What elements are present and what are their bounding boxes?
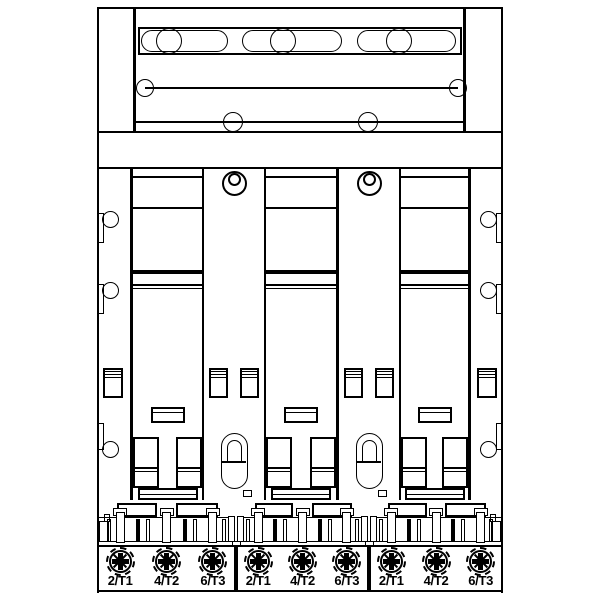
clamp-block [344, 368, 363, 398]
pole-top-line [401, 176, 468, 178]
pole-wall [202, 169, 204, 500]
screw-cross-icon [204, 559, 221, 564]
comb-gap-bracket [228, 516, 235, 542]
comb-post-stem [116, 512, 125, 543]
screw-cross-icon [428, 559, 445, 564]
pole-divider-line [133, 207, 202, 209]
terminal-label: 4/T2 [144, 574, 190, 588]
pivot-circle [223, 112, 243, 132]
clamp-block [209, 368, 228, 398]
comb-end-bracket [99, 521, 109, 542]
clamp-hatch [241, 371, 258, 372]
comb-bar-thick [407, 519, 411, 542]
comb-bar-thick [273, 519, 277, 542]
terminal-label: 6/T3 [324, 574, 370, 588]
contact-window-line [312, 471, 334, 472]
screw-cross-icon [294, 559, 311, 564]
clamp-hatch [478, 371, 496, 372]
side-clip-circle [480, 441, 497, 458]
slot-opening [141, 30, 228, 52]
clamp-hatch [478, 374, 496, 375]
comb-bar-thick [183, 519, 187, 542]
terminal-label: 2/T1 [235, 574, 281, 588]
clamp-block [375, 368, 394, 398]
channel-bottom-tab [378, 490, 387, 497]
pole-wall [336, 169, 339, 500]
contact-window-line [444, 471, 466, 472]
terminal-label: 2/T1 [368, 574, 414, 588]
comb-bar-thin [461, 519, 465, 542]
contact-window-line [178, 471, 200, 472]
pole-divider-line [401, 207, 468, 209]
comb-gap-bracket [237, 516, 244, 542]
pole-divider-line [133, 284, 202, 286]
comb-bar-thick [136, 519, 140, 542]
screw-cross-icon [112, 559, 129, 564]
housing-outline-top [97, 7, 501, 9]
carriage-wall-right [463, 7, 466, 131]
contact-window-line [268, 471, 290, 472]
pole-contact-window [310, 437, 336, 488]
clamp-hatch [376, 374, 393, 375]
pole-top-line [133, 176, 202, 178]
mounting-screw-inner [228, 173, 241, 186]
clamp-hatch [104, 377, 122, 378]
roller-circle [270, 28, 296, 54]
axle-line [135, 121, 465, 123]
pole-contact-window [133, 437, 159, 488]
terminal-label: 4/T2 [413, 574, 459, 588]
comb-bar-thin [328, 519, 332, 542]
terminal-label: 6/T3 [190, 574, 236, 588]
comb-gap-bracket [361, 516, 368, 542]
pole-contact-window [442, 437, 468, 488]
clamp-hatch [210, 371, 227, 372]
pole-bottom-flange-line [272, 494, 330, 495]
comb-post-stem [342, 512, 351, 543]
screw-cross-icon [158, 559, 175, 564]
pole-bottom-flange-line [406, 494, 464, 495]
carriage-wall-left [133, 7, 136, 131]
mounting-screw-inner [363, 173, 376, 186]
screw-cross-icon [250, 559, 267, 564]
pole-vent-plate-line [285, 412, 317, 413]
clamp-block [477, 368, 497, 398]
screw-cross-icon [472, 559, 489, 564]
side-clip-circle [102, 282, 119, 299]
terminal-label: 2/T1 [97, 574, 143, 588]
clamp-hatch [104, 371, 122, 372]
contact-window-line [444, 467, 466, 469]
clamp-hatch [376, 377, 393, 378]
comb-end-bracket-tab [490, 514, 496, 522]
side-clip-tab [496, 213, 502, 243]
keyhole-arch [227, 440, 242, 462]
comb-end-bracket [491, 521, 501, 542]
roller-circle [156, 28, 182, 54]
pole-divider-line [401, 288, 468, 289]
side-clip-tab [496, 284, 502, 314]
keyhole-arch [362, 440, 377, 462]
pole-divider-line [133, 288, 202, 289]
clamp-hatch [345, 371, 362, 372]
contact-window-line [268, 467, 290, 469]
pole-bottom-flange-line [139, 494, 197, 495]
pole-vent-plate [418, 407, 452, 423]
comb-bar-thin [355, 519, 359, 542]
terminal-label: 4/T2 [280, 574, 326, 588]
pole-vent-plate [284, 407, 318, 423]
clamp-hatch [104, 374, 122, 375]
comb-bar-thin [417, 519, 421, 542]
comb-bar-thin [283, 519, 287, 542]
contact-window-line [312, 467, 334, 469]
pole-divider-line [266, 288, 336, 289]
pole-vent-plate-line [152, 412, 184, 413]
clamp-block [103, 368, 123, 398]
clamp-hatch [210, 377, 227, 378]
side-clip-circle [480, 282, 497, 299]
screw-cross-icon [338, 559, 355, 564]
pole-top-line [266, 176, 336, 178]
clamp-hatch [345, 377, 362, 378]
clamp-hatch [210, 374, 227, 375]
terminal-label: 6/T3 [458, 574, 504, 588]
pole-thick-band [133, 270, 202, 274]
pivot-circle [358, 112, 378, 132]
comb-post-stem [298, 512, 307, 543]
clamp-hatch [241, 377, 258, 378]
comb-post-stem [476, 512, 485, 543]
pole-divider-line [401, 284, 468, 286]
contact-window-line [403, 471, 425, 472]
screw-cross-icon [383, 559, 400, 564]
comb-bar-thin [193, 519, 197, 542]
comb-end-bracket-tab [104, 514, 110, 522]
pole-contact-window [266, 437, 292, 488]
side-clip-circle [102, 211, 119, 228]
comb-post-stem [432, 512, 441, 543]
clamp-block [240, 368, 259, 398]
comb-post-stem [162, 512, 171, 543]
comb-bar-thin [146, 519, 150, 542]
pivot-circle [449, 79, 467, 97]
comb-bar-thick [318, 519, 322, 542]
side-clip-tab [496, 423, 502, 450]
comb-post-stem [387, 512, 396, 543]
pole-contact-window [401, 437, 427, 488]
carriage-bottom-line [97, 131, 501, 133]
pole-wall [468, 169, 471, 500]
comb-gap-bracket [370, 516, 377, 542]
axle-line [145, 87, 458, 89]
comb-bar-thin [246, 519, 250, 542]
roller-circle [386, 28, 412, 54]
comb-post-stem [254, 512, 263, 543]
device-drawing-canvas: 2/T14/T26/T32/T14/T26/T32/T14/T26/T3 [0, 0, 600, 600]
clamp-hatch [478, 377, 496, 378]
clamp-hatch [345, 374, 362, 375]
comb-bar-thin [222, 519, 226, 542]
contact-window-line [178, 467, 200, 469]
contact-window-line [135, 471, 157, 472]
pole-thick-band [401, 270, 468, 274]
side-clip-circle [480, 211, 497, 228]
pole-vent-plate [151, 407, 185, 423]
contact-window-line [135, 467, 157, 469]
pole-vent-plate-line [419, 412, 451, 413]
channel-bottom-tab [243, 490, 252, 497]
contact-window-line [403, 467, 425, 469]
side-clip-circle [102, 441, 119, 458]
clamp-hatch [241, 374, 258, 375]
pole-divider-line [266, 284, 336, 286]
side-clip-tab [98, 284, 104, 314]
pole-divider-line [266, 207, 336, 209]
pole-thick-band [266, 270, 336, 274]
clamp-hatch [376, 371, 393, 372]
pole-contact-window [176, 437, 202, 488]
comb-bar-thick [451, 519, 455, 542]
body-top-line [97, 167, 501, 169]
comb-post-stem [208, 512, 217, 543]
comb-bar-thin [379, 519, 383, 542]
pivot-circle [136, 79, 154, 97]
side-clip-tab [98, 213, 104, 243]
